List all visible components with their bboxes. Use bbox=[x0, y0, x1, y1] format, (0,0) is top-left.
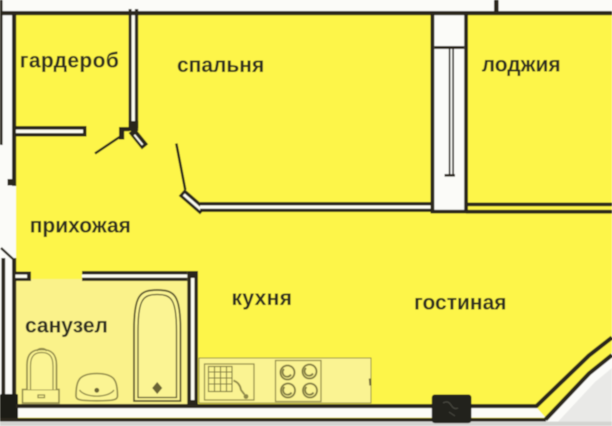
svg-text:санузел: санузел bbox=[25, 314, 108, 337]
svg-text:гардероб: гардероб bbox=[20, 50, 120, 73]
svg-text:спальня: спальня bbox=[177, 54, 264, 77]
svg-text:прихожая: прихожая bbox=[30, 215, 131, 238]
svg-text:гостиная: гостиная bbox=[414, 291, 507, 314]
svg-text:лоджия: лоджия bbox=[482, 53, 561, 76]
svg-text:кухня: кухня bbox=[232, 287, 293, 310]
